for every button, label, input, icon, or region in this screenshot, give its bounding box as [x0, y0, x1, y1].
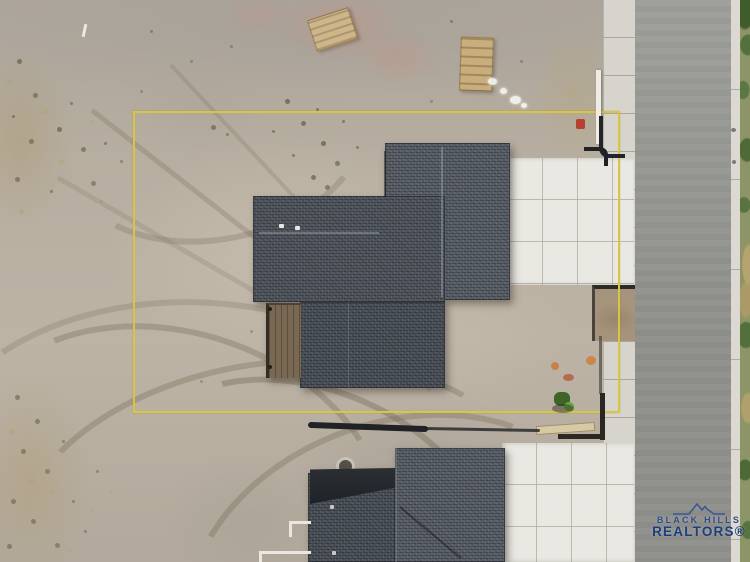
roof-ridge [395, 448, 397, 562]
pebble-speckles [0, 0, 3, 3]
roof-ridge [348, 302, 349, 388]
curb-mark [732, 160, 736, 164]
white-spill [488, 78, 497, 85]
utility-trench [600, 393, 605, 440]
roof-vent [295, 226, 300, 230]
equipment-shadow [552, 404, 574, 413]
white-spill [521, 103, 527, 108]
porch-post [268, 365, 272, 369]
mountain-icon [671, 500, 727, 516]
paint-mark [563, 374, 574, 381]
curb-gutter [731, 0, 740, 562]
porch-post [268, 307, 272, 311]
second-house [308, 448, 505, 562]
aerial-photo: BLACK HILLS REALTORS® [0, 0, 750, 562]
main-house [253, 143, 510, 388]
watermark-brand-bottom: REALTORS® [650, 525, 748, 539]
main-house-roof-left-wing [253, 196, 445, 302]
roof-vent [330, 505, 334, 509]
white-spill [500, 88, 507, 94]
driveway-second [502, 443, 634, 562]
roof-valley [384, 151, 386, 197]
downspout-extension [289, 521, 311, 537]
roof-vent [332, 551, 336, 555]
realtor-watermark: BLACK HILLS REALTORS® [650, 500, 748, 540]
roof-vent [279, 224, 284, 228]
paint-mark [551, 362, 559, 370]
roof-ridge [441, 147, 443, 297]
roof-ridge [259, 232, 379, 234]
utility-trench [599, 336, 602, 394]
drain-pipe-hook [584, 147, 608, 166]
street-asphalt [634, 0, 732, 562]
paint-mark [586, 356, 596, 365]
downspout-extension [259, 551, 311, 562]
curb-mark [731, 128, 736, 132]
main-house-roof-front [300, 302, 445, 388]
utility-trench [558, 434, 605, 439]
white-spill [510, 96, 521, 104]
red-flag [576, 119, 585, 129]
grass-strip [740, 0, 750, 562]
second-house-roof-upper [395, 448, 505, 562]
